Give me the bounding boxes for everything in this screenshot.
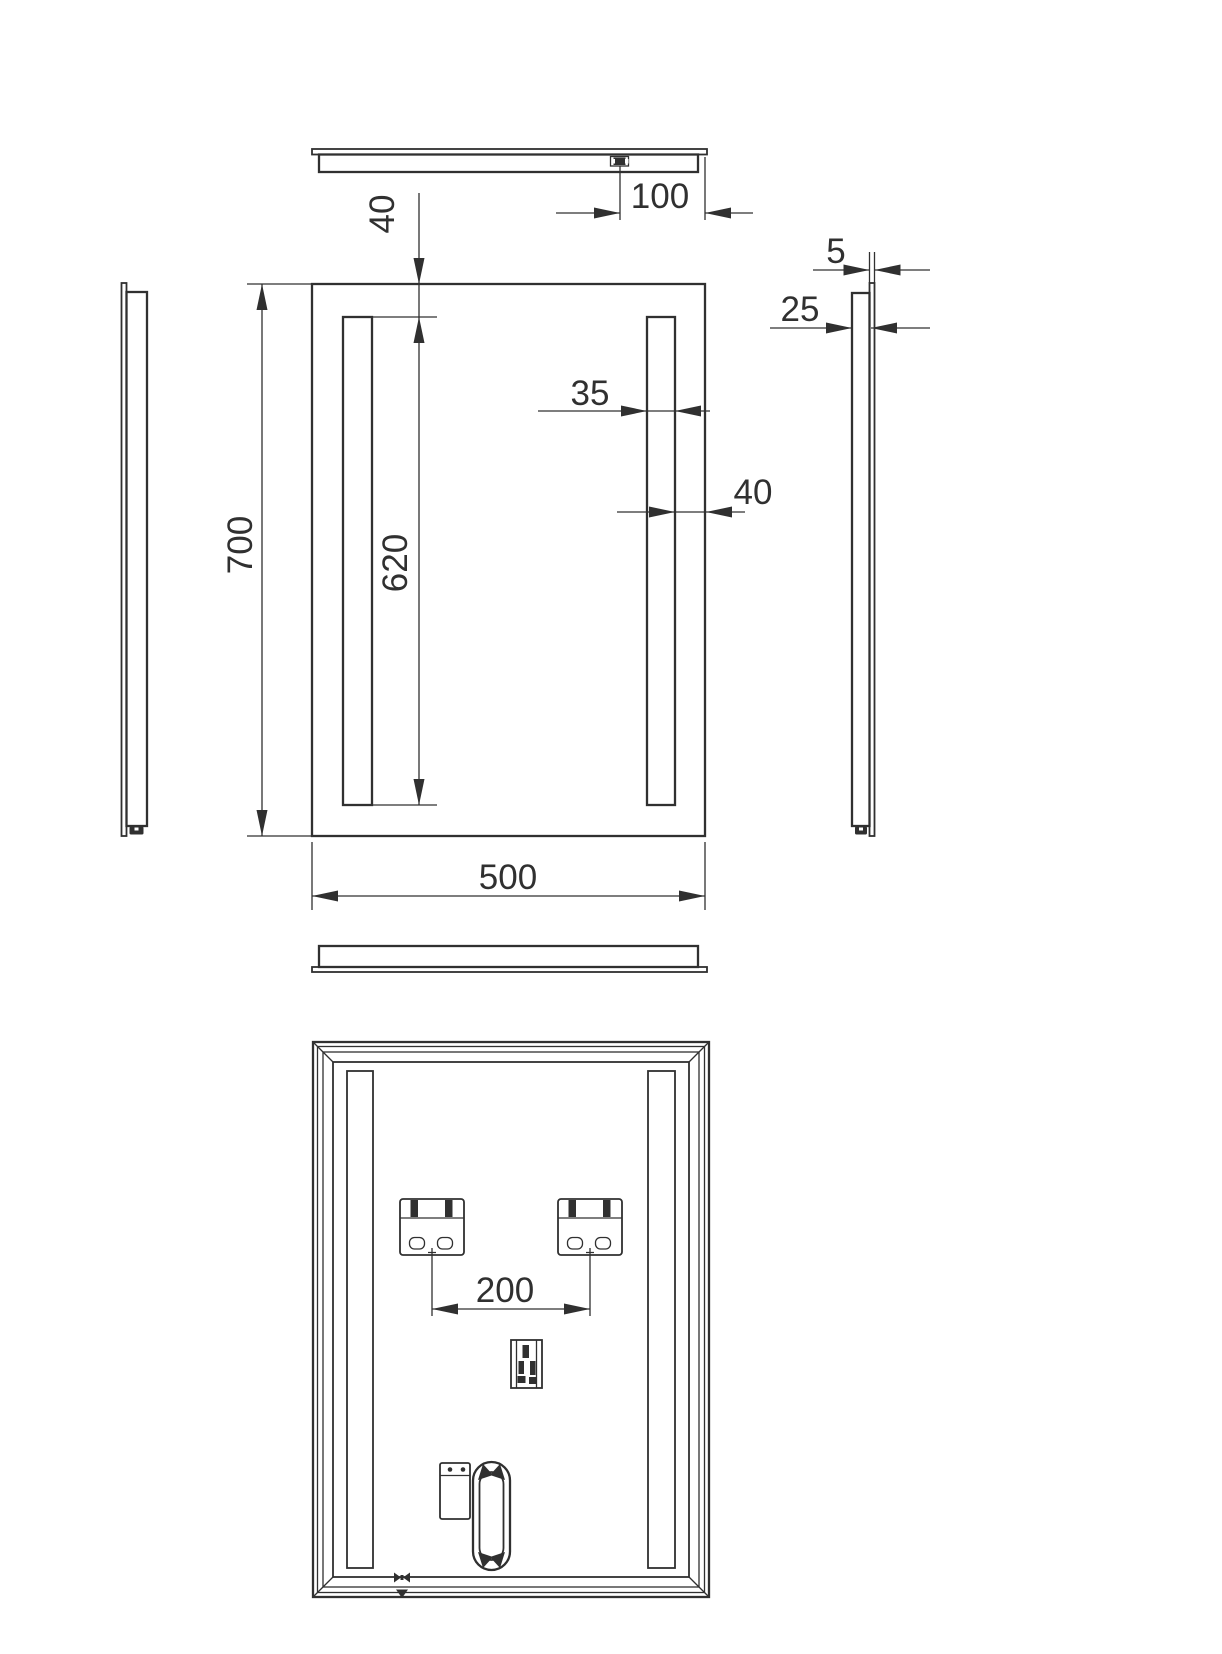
dim-label-100: 100 [631, 177, 689, 216]
dim-label-40-side: 40 [734, 473, 773, 512]
bracket-hole [438, 1238, 453, 1250]
junction-box [440, 1463, 470, 1519]
arrowhead [312, 891, 338, 902]
front-view [312, 284, 705, 836]
bracket-slot [411, 1200, 419, 1217]
dim-strip-length: 620 [376, 317, 425, 805]
touch-switch-side-icon [855, 827, 867, 835]
dim-switch-to-edge: 100 [556, 157, 753, 220]
arrowhead [875, 265, 901, 276]
arrowhead [432, 1304, 458, 1315]
bracket-slot [603, 1200, 611, 1217]
arrowhead [649, 507, 675, 518]
led-strip-left [343, 317, 372, 805]
arrowhead [594, 208, 620, 219]
dim-label-200: 200 [476, 1271, 534, 1310]
power-cord-coil [473, 1462, 510, 1570]
cord-outer [473, 1462, 510, 1570]
right-side-view [852, 252, 875, 836]
dim-label-620: 620 [376, 534, 415, 592]
arrowhead [257, 810, 268, 836]
arrowhead [675, 406, 701, 417]
arrowhead [679, 891, 705, 902]
dim-mirror-width: 500 [312, 842, 705, 910]
arrowhead [414, 317, 425, 343]
bracket-slot [569, 1200, 577, 1217]
arrowhead [621, 406, 647, 417]
bracket-hole [568, 1238, 583, 1250]
junction-box-screw [448, 1467, 453, 1472]
label-mark [523, 1345, 530, 1358]
dim-label-25: 25 [781, 290, 820, 329]
dim-strip-width: 35 [538, 374, 710, 417]
dim-housing-depth: 25 [770, 290, 930, 334]
arrowhead [705, 208, 731, 219]
arrowhead [564, 1304, 590, 1315]
dim-glass-thickness: 5 [813, 232, 930, 276]
arrowhead [414, 779, 425, 805]
arrowhead [414, 258, 425, 284]
bottom-view-housing [319, 946, 698, 967]
bottom-view [312, 946, 707, 972]
dim-label-700: 700 [221, 516, 260, 574]
mirror-technical-drawing: 100 700 40 620 35 40 [0, 0, 1222, 1654]
mounting-bracket-left [400, 1199, 464, 1257]
dim-extension-lines [870, 252, 875, 283]
cord-inner [480, 1472, 504, 1560]
arrowhead [826, 323, 852, 334]
label-mark [519, 1361, 525, 1374]
arrowhead [706, 507, 732, 518]
dim-label-5: 5 [826, 232, 845, 271]
dim-strip-to-edge: 40 [617, 473, 772, 518]
dim-mirror-height: 700 [221, 284, 312, 836]
touch-switch-top-icon [611, 157, 629, 167]
dim-label-40-top: 40 [363, 195, 402, 234]
top-view-housing [319, 155, 698, 173]
back-view: 200 [313, 1042, 709, 1598]
drawing-page: 100 700 40 620 35 40 [0, 0, 1222, 1654]
back-led-strip-right [648, 1071, 675, 1568]
back-led-strip-left [347, 1071, 373, 1568]
mounting-bracket-right [558, 1199, 622, 1257]
bracket-slot [445, 1200, 453, 1217]
arrowhead [257, 284, 268, 310]
touch-switch-side-icon [130, 827, 144, 835]
dim-label-500: 500 [479, 858, 537, 897]
label-mark [530, 1361, 536, 1375]
junction-box-screw [461, 1467, 466, 1472]
left-side-view [122, 283, 148, 836]
top-view [312, 149, 707, 172]
driver-label [511, 1340, 542, 1388]
dim-bracket-spacing: 200 [432, 1257, 590, 1316]
led-strip-right [647, 317, 675, 805]
touch-switch-bottom-icon [394, 1573, 410, 1599]
bottom-view-glass-lip [312, 967, 707, 972]
bracket-hole [410, 1238, 425, 1250]
junction-box-outline [440, 1463, 470, 1519]
label-mark [518, 1376, 526, 1383]
bracket-hole [596, 1238, 611, 1250]
housing-profile [127, 292, 148, 826]
dim-label-35: 35 [571, 374, 610, 413]
arrowhead [844, 265, 870, 276]
label-mark [529, 1377, 537, 1384]
housing-profile [852, 293, 870, 826]
